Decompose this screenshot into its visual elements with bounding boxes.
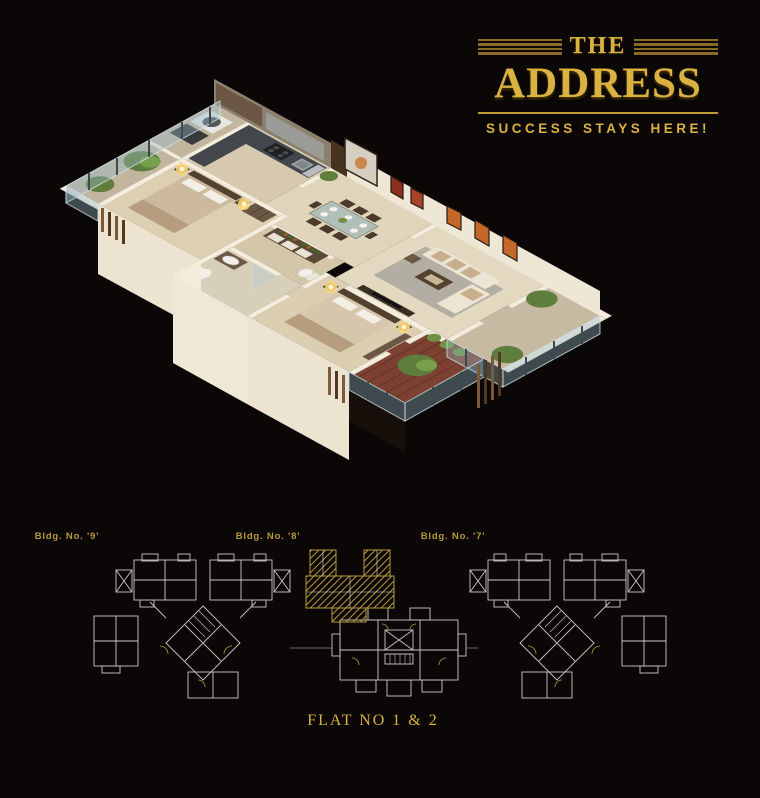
brand-tagline: SUCCESS STAYS HERE!: [478, 121, 718, 136]
right-rule-lines: [634, 39, 718, 55]
brand-name: ADDRESS: [478, 62, 718, 105]
bldg-7-label: Bldg. No. '7': [421, 531, 486, 542]
brand-rule: [478, 112, 718, 114]
flat-caption: FLAT NO 1 & 2: [307, 712, 439, 730]
brand-prefix: THE: [570, 33, 627, 60]
brand-top-row: THE: [478, 33, 718, 60]
page: THE ADDRESS SUCCESS STAYS HERE! Bldg. No…: [0, 0, 760, 798]
building-7-plan: [470, 554, 666, 698]
bldg-9-label: Bldg. No. '9': [35, 531, 100, 542]
building-8-highlighted-flats: [306, 550, 394, 622]
site-key-plan: [88, 548, 672, 710]
brand-logo: THE ADDRESS SUCCESS STAYS HERE!: [478, 33, 718, 136]
render-root: [32, 79, 611, 460]
bldg-8-label: Bldg. No. '8': [236, 531, 301, 542]
building-9-plan: [94, 554, 290, 698]
left-rule-lines: [478, 39, 562, 55]
